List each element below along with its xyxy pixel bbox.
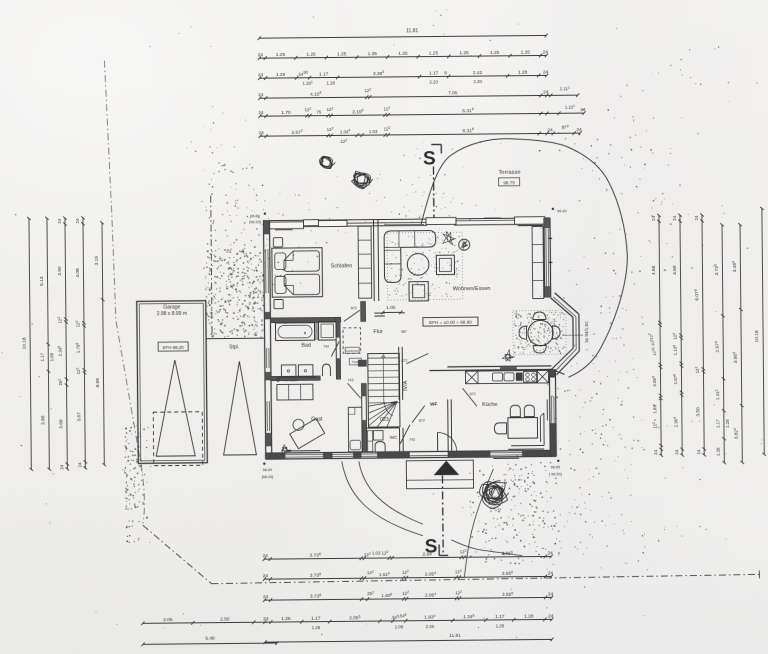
svg-text:HK 1.186: HK 1.186 [284, 378, 297, 382]
svg-text:742: 742 [323, 345, 329, 349]
svg-text:10.18: 10.18 [22, 337, 28, 349]
svg-text:Terrasse: Terrasse [498, 170, 520, 176]
svg-text:3.50: 3.50 [695, 407, 701, 417]
svg-text:2.84: 2.84 [422, 552, 432, 558]
svg-text:24: 24 [547, 127, 553, 133]
svg-text:872: 872 [419, 419, 425, 423]
svg-text:1.70: 1.70 [281, 110, 291, 116]
svg-text:24: 24 [543, 89, 549, 95]
svg-text:24: 24 [262, 553, 268, 559]
svg-text:3.68: 3.68 [58, 419, 64, 429]
svg-text:98.75: 98.75 [503, 180, 515, 185]
svg-text:1.25: 1.25 [337, 51, 347, 57]
svg-text:1.03: 1.03 [369, 129, 378, 134]
svg-text:24: 24 [258, 52, 264, 58]
svg-text:1.08: 1.08 [395, 624, 404, 629]
svg-text:2.50: 2.50 [220, 616, 230, 622]
svg-text:24: 24 [258, 72, 264, 78]
svg-text:24: 24 [576, 127, 582, 133]
svg-text:2.98 x 8.99 m: 2.98 x 8.99 m [157, 311, 187, 317]
svg-text:872: 872 [401, 359, 407, 363]
svg-text:,,: ,, [359, 130, 362, 135]
svg-text:023: 023 [380, 417, 389, 423]
svg-text:98.65: 98.65 [551, 465, 561, 469]
svg-text:24: 24 [548, 591, 554, 597]
svg-text:2.20: 2.20 [473, 79, 482, 84]
svg-text:8.99: 8.99 [95, 378, 101, 388]
svg-text:WC: WC [390, 435, 398, 440]
svg-text:S: S [423, 148, 436, 169]
svg-text:4.08: 4.08 [75, 268, 81, 278]
svg-text:10.18: 10.18 [754, 330, 760, 342]
svg-text:24: 24 [694, 215, 699, 220]
svg-text:1.28: 1.28 [496, 623, 505, 628]
svg-text:987: 987 [401, 330, 407, 334]
svg-text:4.68: 4.68 [672, 265, 678, 275]
svg-text:11.81: 11.81 [406, 28, 418, 34]
svg-text:1.28: 1.28 [326, 80, 335, 85]
svg-text:IV/A: IV/A [403, 380, 409, 391]
svg-text:1.25: 1.25 [459, 50, 469, 56]
svg-text:WF: WF [430, 401, 438, 407]
svg-text:Wohnen/Essen: Wohnen/Essen [453, 286, 491, 292]
svg-text:5.13: 5.13 [39, 276, 45, 286]
svg-text:98.80: 98.80 [250, 214, 260, 218]
svg-text:872: 872 [351, 306, 357, 310]
svg-text:1.38: 1.38 [716, 447, 721, 456]
svg-text:24: 24 [672, 215, 677, 220]
svg-text:24: 24 [674, 449, 679, 454]
svg-text:[98.20]: [98.20] [262, 475, 274, 479]
svg-text:24: 24 [263, 594, 269, 600]
svg-text:1.28: 1.28 [281, 616, 291, 622]
svg-text:24: 24 [75, 218, 80, 223]
svg-text:2.20: 2.20 [426, 624, 435, 629]
svg-text:1.28: 1.28 [276, 72, 286, 78]
svg-text:[ 98.50]: [ 98.50] [549, 472, 562, 476]
svg-text:1.17: 1.17 [715, 419, 720, 428]
svg-text:1.08: 1.08 [49, 352, 54, 361]
svg-text:Stpl.: Stpl. [229, 344, 239, 350]
svg-text:24: 24 [548, 613, 554, 619]
svg-text:2.42: 2.42 [473, 70, 483, 76]
svg-text:24: 24 [263, 616, 269, 622]
svg-text:Garage: Garage [163, 304, 180, 310]
svg-text:1.25: 1.25 [306, 51, 316, 57]
svg-text:3.67: 3.67 [76, 412, 82, 422]
svg-text:1.17: 1.17 [311, 616, 321, 622]
svg-text:24: 24 [59, 464, 64, 469]
svg-text:4.68: 4.68 [651, 265, 657, 275]
svg-text:1.17: 1.17 [40, 352, 45, 361]
svg-text:1.35: 1.35 [368, 51, 378, 57]
svg-text:[98.20]: [98.20] [249, 220, 261, 224]
svg-text:24: 24 [651, 215, 656, 220]
svg-text:11.81: 11.81 [449, 633, 461, 639]
svg-text:24: 24 [653, 449, 658, 454]
svg-text:1.17: 1.17 [319, 71, 329, 77]
svg-text:75: 75 [316, 109, 321, 114]
svg-text:EFH 98,20: EFH 98,20 [163, 345, 185, 350]
svg-text:24: 24 [258, 110, 264, 116]
svg-text:1.00: 1.00 [386, 305, 396, 311]
svg-text:24: 24 [548, 570, 554, 576]
svg-text:24: 24 [258, 130, 264, 136]
svg-text:24: 24 [77, 462, 82, 467]
svg-text:872: 872 [470, 392, 476, 396]
svg-text:24: 24 [543, 49, 549, 55]
svg-text:24: 24 [696, 449, 701, 454]
svg-text:1.25: 1.25 [276, 52, 286, 58]
svg-text:24: 24 [547, 550, 553, 556]
svg-text:Garderobe: Garderobe [346, 349, 359, 353]
svg-text:1.28: 1.28 [725, 419, 730, 428]
svg-text:3x 94/1.52: 3x 94/1.52 [584, 321, 589, 343]
svg-text:24: 24 [258, 92, 264, 98]
svg-text:1.28: 1.28 [518, 69, 528, 75]
svg-text:2.06: 2.06 [163, 617, 173, 623]
svg-text:1.25: 1.25 [429, 50, 439, 56]
svg-text:1.17: 1.17 [495, 614, 505, 620]
svg-text:2.20: 2.20 [429, 79, 438, 84]
svg-text:Küche: Küche [482, 402, 497, 408]
svg-text:1.25: 1.25 [521, 49, 531, 55]
svg-text:1.28: 1.28 [312, 625, 321, 630]
svg-text:Bad: Bad [301, 343, 311, 349]
svg-text:98.00: 98.00 [263, 468, 273, 472]
svg-text:Schlafen: Schlafen [330, 263, 352, 269]
svg-text:24: 24 [57, 218, 62, 223]
svg-text:Flur: Flur [373, 329, 383, 335]
svg-text:743: 743 [409, 438, 415, 442]
svg-text:743: 743 [347, 378, 353, 382]
svg-text:1.25: 1.25 [490, 50, 500, 56]
svg-text:7.05: 7.05 [448, 90, 458, 96]
svg-text:1.28: 1.28 [524, 614, 534, 620]
svg-text:1.17: 1.17 [429, 70, 439, 76]
svg-text:EFH = ±0.00 = 98.90: EFH = ±0.00 = 98.90 [429, 320, 472, 325]
svg-text:98.40: 98.40 [557, 209, 567, 213]
svg-text:1.25: 1.25 [398, 51, 408, 57]
svg-text:24: 24 [263, 573, 269, 579]
svg-text:24: 24 [580, 107, 586, 113]
svg-text:24: 24 [543, 69, 549, 75]
svg-text:3.90: 3.90 [57, 266, 63, 276]
svg-text:1.89: 1.89 [652, 405, 657, 414]
svg-text:5.48: 5.48 [205, 636, 215, 642]
svg-text:3.19: 3.19 [94, 256, 100, 266]
svg-text:3.88: 3.88 [40, 415, 46, 425]
